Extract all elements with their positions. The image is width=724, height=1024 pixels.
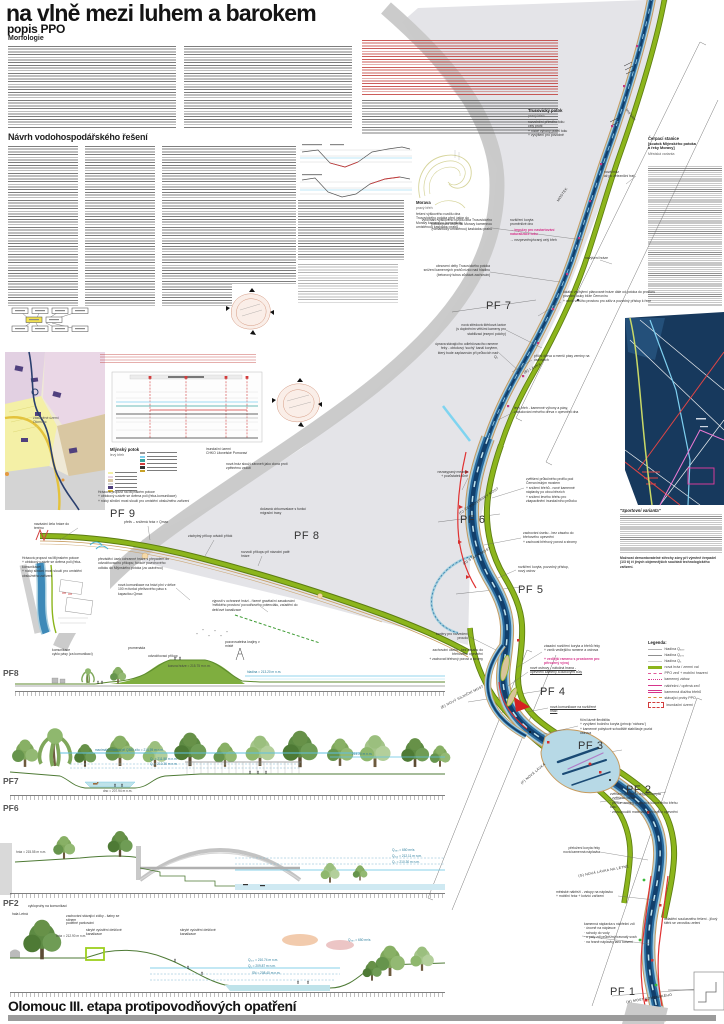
intro-red-text: [362, 40, 558, 96]
plan-ann: nová komunikace na hrázi plní v délce 10…: [118, 583, 176, 596]
map-ann: zachování úseku - bez zásahu do břehovéh…: [426, 648, 483, 661]
footer-title: Olomouc III. etapa protipovodňových opat…: [8, 998, 296, 1014]
trusovicky-sub: pravý břeh: [528, 114, 545, 118]
legend-swatch-paving: [648, 690, 662, 693]
landuse-map: [5, 352, 105, 510]
hraz-note: nová hráz slouží zároveň jako clona prot…: [226, 462, 288, 471]
pf6-level: Q₃₈₀ = 650 m³/s: [392, 848, 414, 852]
sport-heading: "Sportovní varianta": [620, 508, 661, 513]
legend-item: hladina Q₃₈₀: [648, 647, 720, 651]
pf8-ann: odvodňovací příkop: [148, 654, 182, 658]
legend-swatch-line: [648, 649, 662, 650]
map-ann: přeložení koryta řeky nová kamenná nápla…: [552, 846, 600, 855]
map-ann: + vedlejší rameno s prostorem pro přiroz…: [544, 657, 608, 666]
plan-ann: rozvodí příkopu při návodní patě hráze: [241, 550, 297, 559]
section-heading-morfologie: Morfologie: [8, 35, 44, 42]
scale-ruler: [15, 691, 445, 696]
pf2-ann: skryté vyústění dešťové kanalizace: [180, 928, 232, 937]
map-ann: městské nábřeží - vstupy na náplavku + m…: [556, 890, 618, 899]
navrh-col1: [8, 146, 78, 308]
morfologie-text-col2: [184, 46, 352, 128]
section-pf8: [15, 630, 445, 687]
detail-box: [668, 972, 724, 1010]
mlynsky-label: Mlýnský potok: [110, 447, 139, 452]
legend-item: hladina Q₁₀₀: [648, 653, 720, 657]
morphology-sketch-2: [272, 378, 322, 427]
trusovicky-note: rozvolnění přímého toku celý profil + ní…: [528, 120, 583, 138]
view-level: 214.20 m n.m.: [352, 752, 372, 756]
plan-ann: navázání čela hráze do terénu: [34, 522, 78, 531]
pf9-label: PF 9: [110, 508, 136, 520]
map-ann: nová středová štěrková lavice (s doplněn…: [446, 323, 506, 336]
map-ann: navýšení hráze: [585, 256, 623, 260]
map-ann: zvětšení poloměru oblouku koryta · zvětš…: [610, 792, 680, 814]
landuse-caption: zastavěné území Olomouc: [33, 416, 79, 425]
propust-note: Hrázová propust na Mlýnském potoce + obt…: [98, 490, 228, 503]
legend-item: inundační území: [648, 702, 720, 708]
map-ann: lokální vychýlení plánované hráze dále o…: [563, 290, 657, 303]
pf2-level: hráz = 212.90 m n.m.: [56, 934, 86, 938]
pf6-level: hráz = 215.55 m n.m.: [16, 850, 46, 854]
plan-ann: přeliv – snížená hráz × Qmax: [124, 520, 172, 524]
pf2-level: Q₅ = 209.87 m n.m.: [248, 964, 276, 968]
map-ann: nová hráz až po železniční trať: [604, 170, 644, 179]
map-ann: říční lázně flexibilita + vyvýšení boční…: [580, 718, 664, 736]
legend-swatch-quay: [648, 685, 662, 686]
sport-note: Možnost demontovatelné střechy zóny při …: [620, 556, 722, 569]
trusovicky-label: Trusovický potok: [528, 108, 562, 113]
strip-pf8-label: PF8: [3, 668, 19, 678]
dog-icon: [93, 783, 98, 785]
map-ann: nová komunikace na rozšířené hrázi: [550, 705, 604, 714]
pf7-label: PF 7: [486, 300, 512, 312]
chart-legend: [140, 452, 177, 473]
pf2-ann: hala Letná: [12, 912, 34, 916]
legend-swatch-existing: [648, 697, 662, 698]
cerpaci-heading: Čerpací stanice: [648, 136, 679, 141]
section-heading-navrh: Návrh vodohospodářského řešení: [8, 132, 148, 142]
section-pf6: [0, 831, 445, 895]
map-ann: příční dřeva a menší pásy zeminy na ostr…: [534, 354, 592, 363]
map-ann: zvětšení průtočného profilu pod Černovír…: [526, 477, 580, 504]
legend-swatch-dike: [648, 666, 662, 669]
pf4-label: PF 4: [540, 686, 566, 698]
pf2-level: Q₁₀₀ = 210.74 m n.m.: [248, 958, 278, 962]
pf7-level: Q₁ = 210.36 m n.m.: [150, 762, 178, 766]
pf8-ann: promenáda: [128, 646, 158, 650]
pf2-level: Q₃₈₀ = 650 m³/s: [348, 938, 370, 942]
map-ann: zachování úseku - bez zásahu do břehovéh…: [523, 531, 583, 544]
pf7-level: Q₅ = 211.58 m n.m.: [150, 757, 178, 761]
map-ann: levý břeh - kamenné výhony a pásy, zabud…: [514, 406, 580, 415]
pf8-label: PF 8: [294, 530, 320, 542]
footer-bar: [8, 1015, 716, 1021]
pf2-ann: podélné parkování: [66, 921, 106, 925]
map-ann: obnovení delty Trusovického potoka sníže…: [414, 264, 490, 277]
morava-sub: pravý břeh: [416, 206, 433, 210]
legend-item: nábřežní / opěrná zeď: [648, 684, 720, 688]
legend-item: hladina Q₅: [648, 659, 720, 663]
pf6-level: Q₁₀₀ = 212.11 m n.m.: [392, 854, 422, 858]
pf6-label: PF 6: [460, 514, 486, 526]
map-ann: kamenná náplavka s nábřežní zdí · úrovně…: [584, 922, 644, 944]
morphology-sketch-1: [226, 288, 274, 335]
sport-text: [620, 514, 722, 554]
red-note: [100, 354, 256, 364]
pf8-level: hladina = 213.20 m n.m.: [247, 670, 281, 674]
cerpaci-sub3: Městská varianta: [648, 152, 674, 156]
map-ann: rozšíření koryta, pozvolný přístup, nový…: [518, 565, 572, 574]
legend-item: PPO zeď + mobilní hrazení: [648, 671, 720, 675]
plan-ann: převáděcí úsek ochranné hráze s přepadem…: [98, 557, 174, 570]
pf8-level: koruna hráze = 215.75 m n.m.: [168, 664, 211, 668]
flow-diagram: [12, 308, 88, 332]
map-ann: rozšíření koryta proměnlivé dno: [510, 218, 560, 227]
mlynsky-sub: levý břeh: [110, 453, 124, 457]
profile-chart: [112, 372, 262, 442]
map-legend: Legenda: hladina Q₃₈₀ hladina Q₁₀₀ hladi…: [648, 640, 720, 710]
poster-subtitle: popis PPO: [7, 22, 65, 36]
birds-icon: [196, 630, 228, 637]
navrh-col5: [298, 200, 404, 260]
cerpaci-sub1: [soutok Mlýnského potoka: [648, 142, 696, 146]
pf8-ann: komunikace cyklo pásy (za komunikací): [52, 648, 98, 657]
legend-swatch-line: [648, 655, 662, 656]
legend-swatch-wall: [648, 673, 662, 674]
highlight-box: [86, 948, 104, 960]
strip-pf7-label: PF7: [3, 776, 19, 786]
plan-ann: dočasná cirkumvalace s funkcí migrační t…: [260, 507, 320, 516]
plan-ann: záchytný příkop odvádí přítok: [188, 534, 242, 538]
navrh-col6: [298, 264, 398, 304]
legend-item: kamenná dlažba břehů: [648, 690, 720, 694]
map-ann: nové ostrovy - nátočná hrana - opevnění …: [530, 666, 590, 675]
cerpaci-text: [648, 166, 722, 306]
legend-item: kamenný zához: [648, 677, 720, 681]
strip-pf6-label: PF6: [3, 803, 19, 813]
view-strip: [12, 728, 450, 767]
pf8-ann: pozorovatelna krajiny v místě: [225, 640, 265, 649]
map-ann: → impulzy pro nastartování naturalizace …: [510, 228, 560, 237]
pf2-ann: skryté vyústění dešťové kanalizace: [86, 928, 138, 937]
propust-note-2: Hrázová propust na Mlýnském potoce + obt…: [22, 556, 98, 578]
legend-item: nová hráz / zemní val: [648, 665, 720, 669]
map-ann: nezasypaný meandr + pozůstatek tůně: [428, 470, 468, 479]
scale-ruler: [10, 992, 445, 997]
map-ann: bariéry pro rozvedení proudu: [426, 632, 468, 641]
pf2-level: SN = 208.40 m n.m.: [252, 971, 280, 975]
pf2-ann: cyklopruhy na komunikaci: [28, 904, 70, 908]
pf7-level: dno = 207.94 m n.m.: [103, 789, 132, 793]
map-ann: úprava stávajícího odlehčovacího ramene …: [434, 342, 498, 360]
map-ann: vyrovnání výškového rozdílu dna Trusovic…: [418, 218, 492, 231]
pf6-level: Q₅ = 210.30 m n.m.: [392, 860, 420, 864]
legend-swatch-line: [648, 661, 662, 662]
city-inset-map: [625, 312, 724, 505]
view-level: maximální hladina při Q380 z/to = 214.59…: [95, 748, 164, 752]
pf3-label: PF 3: [578, 740, 604, 752]
morava-label: Morava: [416, 200, 431, 205]
section-pf7: [10, 762, 445, 788]
strip-pf2-label: PF2: [3, 898, 19, 908]
navrh-col4: [232, 146, 296, 284]
navrh-col2: [85, 146, 155, 308]
plan-ann: výpusti v ochranné hrázi - řízené gravit…: [212, 599, 309, 612]
map-ann: doladění současného řešení - jílový štěr…: [664, 917, 718, 926]
morfologie-text-col1: [8, 46, 176, 128]
scale-ruler: [10, 795, 445, 800]
legend-item: stávající prvky PPO: [648, 696, 720, 700]
cerpaci-sub2: a řeky Moravy]: [648, 146, 675, 150]
pf1-label: PF 1: [610, 986, 636, 998]
pf5-label: PF 5: [518, 584, 544, 596]
mini-profiles: [300, 144, 412, 197]
inundace-label: inundační území CHKO Litovelské Pomoraví: [206, 447, 266, 456]
legend-swatch-inundation: [648, 702, 664, 708]
legend-swatch-riprap: [648, 679, 662, 680]
map-ann: zásadní rozšíření koryta a břehů řeky + …: [544, 644, 608, 653]
scale-ruler: [10, 893, 445, 898]
navrh-col3: [162, 146, 232, 308]
poster: na vlně mezi luhem a barokem popis PPO M…: [0, 0, 724, 1024]
map-ann: → nezpevněný/oraný celý břeh: [510, 238, 560, 242]
legend-title: Legenda:: [648, 640, 720, 645]
